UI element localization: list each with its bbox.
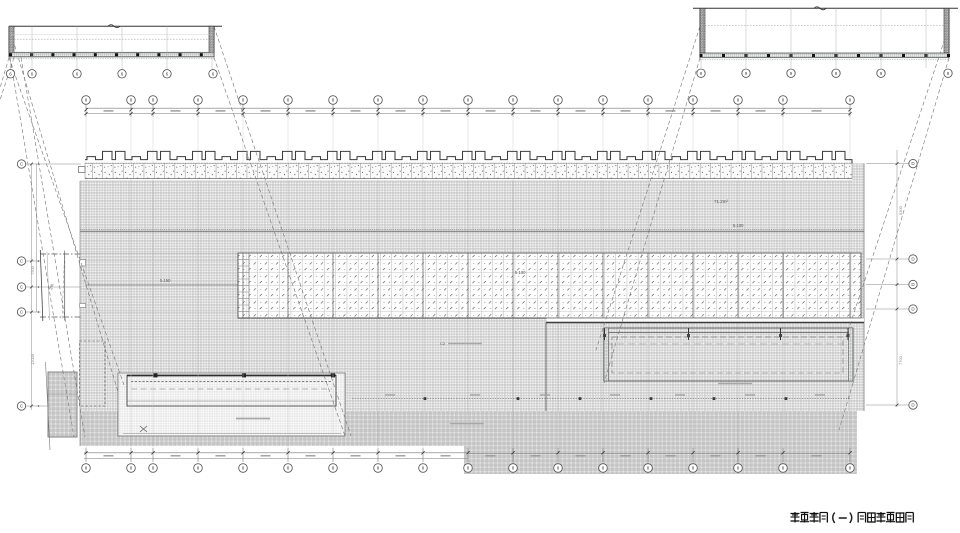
svg-text:71.2m²: 71.2m² bbox=[714, 199, 729, 204]
svg-text:5300: 5300 bbox=[898, 205, 903, 215]
svg-text:5.100: 5.100 bbox=[733, 223, 744, 228]
svg-text:7700: 7700 bbox=[898, 355, 903, 365]
svg-text:5.100: 5.100 bbox=[515, 270, 526, 275]
svg-text:C2: C2 bbox=[440, 341, 446, 346]
svg-text:12000: 12000 bbox=[30, 353, 35, 365]
svg-text:5.150: 5.150 bbox=[160, 278, 171, 283]
svg-text:7200: 7200 bbox=[30, 265, 35, 275]
